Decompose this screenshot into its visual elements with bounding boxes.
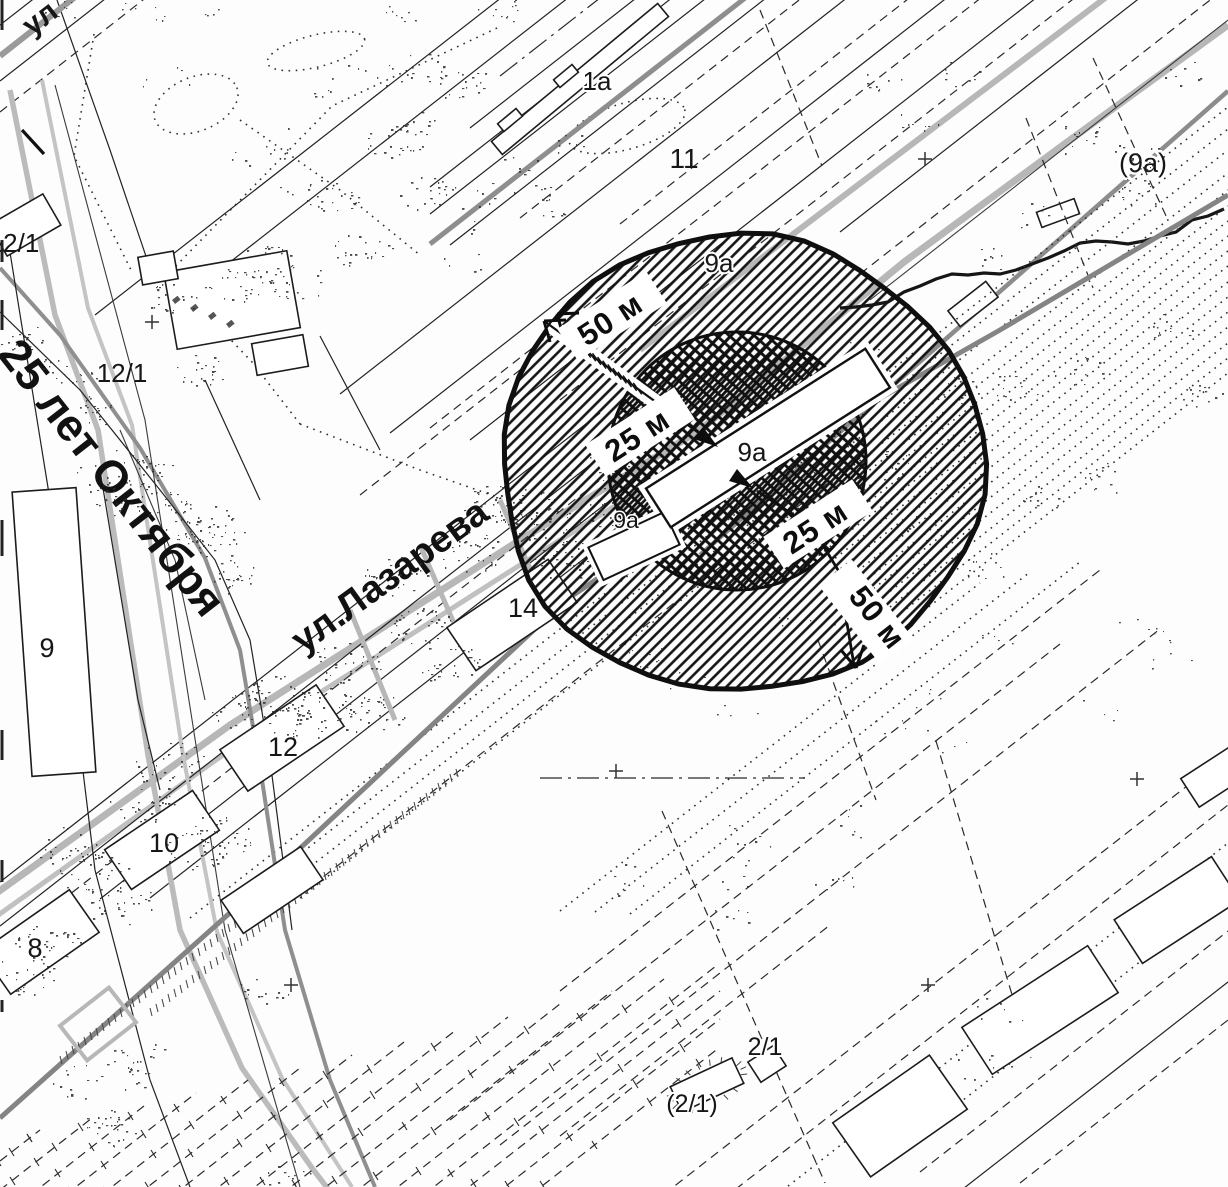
svg-text:1а: 1а xyxy=(583,66,612,96)
svg-text:9: 9 xyxy=(39,633,54,663)
svg-text:10: 10 xyxy=(149,828,179,858)
svg-text:2/1: 2/1 xyxy=(748,1033,783,1061)
svg-text:14: 14 xyxy=(508,593,538,623)
svg-text:9а: 9а xyxy=(613,507,639,533)
svg-text:11: 11 xyxy=(669,143,698,174)
svg-text:(9а): (9а) xyxy=(1119,148,1167,178)
svg-text:(2/1): (2/1) xyxy=(666,1090,717,1118)
svg-text:9а: 9а xyxy=(738,437,767,467)
svg-text:12/1: 12/1 xyxy=(97,358,148,388)
svg-text:12/1: 12/1 xyxy=(0,228,39,258)
svg-text:9а: 9а xyxy=(705,248,734,278)
